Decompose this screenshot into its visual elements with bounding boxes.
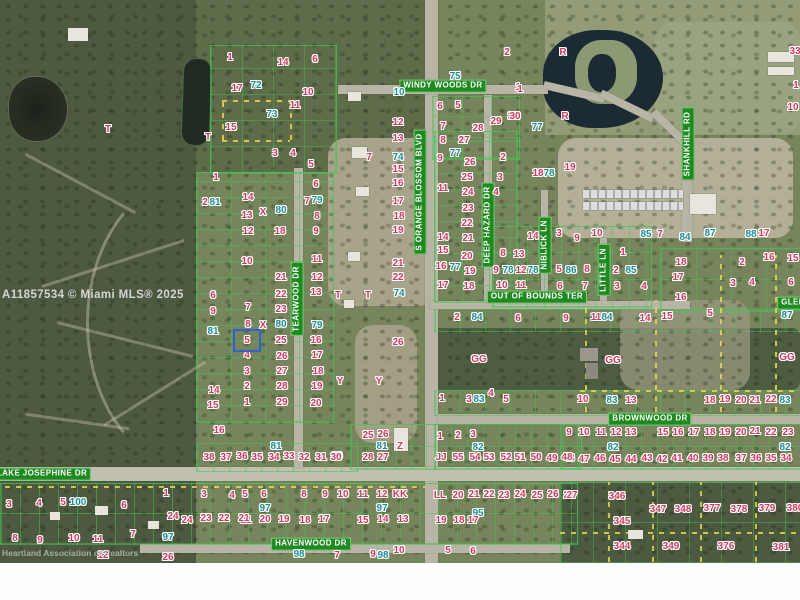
lot-number-label: 16 (672, 428, 683, 438)
lot-number-label: 22 (218, 514, 229, 524)
lot-number-label: 27 (566, 491, 577, 501)
lot-number-label: 3 (730, 279, 736, 289)
lot-number-label: 27 (377, 453, 388, 463)
lot-number-label: 1 (227, 53, 233, 63)
lot-number-label: JJ (435, 453, 446, 463)
lot-number-label: Y (337, 377, 344, 387)
lot-number-label: 28 (472, 124, 483, 134)
lot-number-label: 14 (242, 193, 253, 203)
lot-number-label: 1 (439, 394, 445, 404)
lot-number-label: 18 (675, 258, 686, 268)
lot-number-label: 24 (462, 188, 473, 198)
lot-number-label: 5 (503, 395, 509, 405)
lot-number-label: 29 (276, 398, 287, 408)
lot-number-label: 25 (362, 431, 373, 441)
lot-number-label: 17 (758, 229, 769, 239)
lot-number-label: 25 (531, 491, 542, 501)
lot-number-label: R (559, 48, 566, 58)
lot-number-label: 13 (625, 428, 636, 438)
lot-number-label: 20 (735, 396, 746, 406)
lot-number-label: 2 (739, 258, 745, 268)
lot-number-label: 15 (787, 254, 798, 264)
lot-number-label: 1 (620, 248, 626, 258)
lot-number-label: 49 (546, 454, 557, 464)
lot-number-label: 11 (516, 281, 527, 291)
lot-number-label: 18 (453, 516, 464, 526)
lot-number-label: 24 (167, 512, 178, 522)
lot-number-label: 8 (12, 534, 18, 544)
lot-number-label: 15 (661, 312, 672, 322)
lot-number-label: 54 (469, 453, 480, 463)
block-number-label: 100 (70, 498, 87, 508)
lot-number-label: 13 (241, 211, 252, 221)
lot-number-label: 2 (500, 153, 506, 163)
lot-number-label: T (105, 125, 111, 135)
lot-number-label: 2 (202, 198, 208, 208)
lot-number-label: 17 (231, 84, 242, 94)
lot-number-label: 20 (735, 428, 746, 438)
lot-number-label: T (205, 133, 211, 143)
lot-number-label: 5 (455, 101, 461, 111)
block-number-label: 79 (311, 196, 322, 206)
lot-number-label: 3 (614, 282, 620, 292)
lot-number-label: 18 (393, 212, 404, 222)
lot-number-label: 16 (675, 293, 686, 303)
lot-number-label: 377 (704, 504, 721, 514)
lot-number-label: 20 (452, 491, 463, 501)
lot-number-label: 1 (213, 173, 219, 183)
lot-number-label: 8 (500, 249, 506, 259)
lot-number-label: 3 (244, 367, 250, 377)
lot-number-label: 22 (461, 219, 472, 229)
bottom-white-strip (0, 563, 800, 600)
lot-number-label: 15 (392, 165, 403, 175)
block-number-label: 83 (606, 396, 617, 406)
lot-number-label: 10 (68, 534, 79, 544)
lot-number-label: 345 (614, 517, 631, 527)
attribution-watermark: Heartland Association of Realtors (2, 548, 138, 558)
lot-number-label: 12 (392, 118, 403, 128)
block-number-label: 78 (502, 266, 513, 276)
lot-number-label: 11 (438, 184, 449, 194)
lot-number-label: 18 (463, 282, 474, 292)
lot-number-label: T (335, 291, 341, 301)
lot-number-label: 14 (277, 58, 288, 68)
lot-number-label: 18 (704, 396, 715, 406)
mls-map-screenshot: WINDY WOODS DRS ORANGE BLOSSOM BLVDTEARW… (0, 0, 800, 600)
lot-number-label: 6 (312, 55, 318, 65)
block-number-label: 98 (293, 550, 304, 560)
lot-number-label: 5 (445, 546, 451, 556)
lot-number-label: 19 (435, 516, 446, 526)
lot-number-label: 19 (392, 226, 403, 236)
lot-number-label: 10 (302, 88, 313, 98)
highlighted-lot-number: 5 (244, 336, 250, 346)
lot-number-label: 13 (310, 288, 321, 298)
block-number-label: 86 (565, 266, 576, 276)
lot-number-label: 17 (672, 273, 683, 283)
lot-number-label: 7 (245, 303, 251, 313)
lot-number-label: Z (397, 442, 403, 452)
lot-number-label: 31 (315, 453, 326, 463)
lot-number-label: 8 (301, 490, 307, 500)
lot-number-label: 11 (591, 313, 602, 323)
block-number-label: 87 (704, 229, 715, 239)
lot-number-label: 10 (496, 281, 507, 291)
block-number-label: 97 (259, 504, 270, 514)
lot-number-label: 15 (657, 428, 668, 438)
lot-number-label: 22 (765, 395, 776, 405)
lot-number-label: 12 (610, 428, 621, 438)
lot-number-label: 5 (556, 265, 562, 275)
lot-number-label: 11 (290, 101, 301, 111)
block-number-label: 84 (679, 233, 690, 243)
block-number-label: 83 (779, 396, 790, 406)
lot-number-label: 376 (718, 542, 735, 552)
block-number-label: 80 (275, 206, 286, 216)
lot-number-label: 47 (578, 455, 589, 465)
lot-number-label: 346 (609, 492, 626, 502)
lot-number-label: 28 (362, 453, 373, 463)
lot-number-label: 4 (244, 351, 250, 361)
block-number-label: 81 (376, 442, 387, 452)
lot-number-label: 5 (60, 498, 66, 508)
lot-number-label: 10 (787, 103, 798, 113)
lot-number-label: 6 (470, 547, 476, 557)
lot-number-label: 34 (780, 454, 791, 464)
lot-number-label: 7 (657, 230, 663, 240)
lot-number-label: 35 (251, 453, 262, 463)
lot-number-label: 3 (272, 149, 278, 159)
lot-number-label: 26 (392, 338, 403, 348)
lot-number-label: 16 (392, 179, 403, 189)
lot-number-label: 22 (483, 490, 494, 500)
lot-number-label: GG (779, 353, 795, 363)
block-number-label: 78 (543, 169, 554, 179)
lot-number-label: 8 (584, 265, 590, 275)
lot-number-label: 3 (497, 173, 503, 183)
block-number-label: 88 (745, 230, 756, 240)
lot-number-label: 378 (731, 505, 748, 515)
block-number-label: 85 (625, 266, 636, 276)
lot-number-label: 7 (366, 153, 372, 163)
lot-number-label: 39 (702, 454, 713, 464)
lot-number-label: 18 (299, 516, 310, 526)
lot-number-label: 11 (596, 428, 607, 438)
lot-number-label: 9 (574, 234, 580, 244)
lot-number-label: 21 (275, 273, 286, 283)
lot-number-label: 6 (261, 490, 267, 500)
lot-number-label: 30 (330, 453, 341, 463)
lot-number-label: 10 (337, 490, 348, 500)
lot-number-label: 45 (609, 455, 620, 465)
lot-number-label: 16 (213, 426, 224, 436)
block-number-label: 77 (449, 149, 460, 159)
lot-number-label: 46 (594, 454, 605, 464)
lot-number-label: 19 (464, 267, 475, 277)
lot-number-label: 22 (275, 290, 286, 300)
lot-number-label: 20 (259, 515, 270, 525)
lot-number-label: 13 (625, 396, 636, 406)
lot-number-label: 14 (377, 515, 388, 525)
lot-number-label: 17 (467, 516, 478, 526)
block-number-label: 81 (209, 198, 220, 208)
lot-number-label: 1 (163, 489, 169, 499)
lot-number-label: GG (605, 356, 621, 366)
lot-number-label: 36 (236, 452, 247, 462)
lot-number-label: 23 (462, 204, 473, 214)
lot-number-label: 379 (759, 504, 776, 514)
lot-number-label: 9 (437, 154, 443, 164)
lot-number-label: 24 (181, 516, 192, 526)
block-number-label: 97 (162, 533, 173, 543)
lot-number-label: 3 (201, 490, 207, 500)
lot-number-label: 6 (121, 501, 127, 511)
lot-number-label: 7 (304, 197, 310, 207)
lot-number-label: 7 (334, 551, 340, 561)
lot-number-label: 25 (275, 336, 286, 346)
lot-number-label: 21 (238, 514, 249, 524)
block-number-label: 98 (377, 551, 388, 561)
lot-number-label: 52 (500, 453, 511, 463)
lot-number-label: 347 (650, 505, 667, 515)
lot-number-label: 19 (719, 428, 730, 438)
lot-number-label: 55 (452, 453, 463, 463)
lot-number-label: R (561, 112, 568, 122)
lot-number-label: 18 (704, 428, 715, 438)
lot-number-label: 37 (735, 454, 746, 464)
lot-number-label: 13 (513, 250, 524, 260)
lot-number-label: 13 (397, 515, 408, 525)
lot-number-label: 344 (614, 542, 631, 552)
lot-number-label: 40 (687, 454, 698, 464)
lot-number-label: 26 (377, 430, 388, 440)
block-number-label: 77 (531, 123, 542, 133)
block-number-label: 74 (393, 289, 404, 299)
lot-number-label: 17 (311, 351, 322, 361)
lot-number-label: 5 (308, 160, 314, 170)
lot-number-label: 12 (515, 266, 526, 276)
lot-number-label: 18 (532, 169, 543, 179)
lot-number-label: 2 (504, 48, 510, 58)
lot-number-label: 5 (707, 309, 713, 319)
lot-number-label: 5 (242, 490, 248, 500)
lot-number-label: 2 (455, 431, 461, 441)
lot-number-label: 2 (613, 266, 619, 276)
lot-number-label: 21 (468, 490, 479, 500)
lot-number-label: 12 (242, 227, 253, 237)
lot-number-label: 20 (461, 252, 472, 262)
lot-number-label: LL (434, 491, 446, 501)
block-number-label: 73 (266, 110, 277, 120)
lot-number-label: 4 (488, 389, 494, 399)
lot-number-label: 19 (311, 382, 322, 392)
lot-number-label: 38 (717, 454, 728, 464)
lot-number-label: 4 (36, 499, 42, 509)
lot-number-label: 4 (641, 282, 647, 292)
lot-number-label: 1 (244, 398, 250, 408)
block-number-label: 77 (449, 263, 460, 273)
block-number-label: 79 (311, 321, 322, 331)
lot-number-label: 23 (200, 514, 211, 524)
lot-number-label: 9 (370, 550, 376, 560)
lot-number-label: 18 (312, 367, 323, 377)
lot-number-label: 6 (557, 282, 563, 292)
block-number-label: 85 (640, 230, 651, 240)
lot-number-label: 12 (376, 490, 387, 500)
block-number-label: 97 (376, 504, 387, 514)
lot-number-label: 12 (311, 273, 322, 283)
lot-number-label: 43 (641, 454, 652, 464)
block-number-label: 74 (392, 153, 403, 163)
lot-number-label: KK (393, 490, 407, 500)
block-number-label: 81 (207, 327, 218, 337)
lot-number-label: 9 (37, 536, 43, 546)
lot-number-label: 381 (773, 543, 790, 553)
lot-number-label: 380 (787, 504, 800, 514)
lot-number-label: 348 (675, 505, 692, 515)
lot-number-label: 21 (749, 427, 760, 437)
lot-number-label: 9 (493, 266, 499, 276)
lot-number-label: 19 (719, 395, 730, 405)
block-number-label: 84 (471, 313, 482, 323)
lot-number-label: 4 (229, 491, 235, 501)
lot-number-label: 26 (464, 158, 475, 168)
lot-number-label: 6 (437, 102, 443, 112)
lot-number-label: 23 (498, 491, 509, 501)
lot-number-label: 17 (688, 428, 699, 438)
lot-number-label: X (260, 208, 267, 218)
block-number-label: 82 (779, 443, 790, 453)
lot-number-label: 4 (493, 188, 499, 198)
lot-number-label: 22 (392, 273, 403, 283)
lot-number-label: 23 (782, 428, 793, 438)
block-number-label: 78 (527, 266, 538, 276)
lot-number-label: 51 (514, 453, 525, 463)
lot-number-label: 9 (210, 307, 216, 317)
lot-number-label: 27 (458, 136, 469, 146)
lot-number-label: 9 (566, 428, 572, 438)
lot-number-label: 1 (437, 432, 443, 442)
block-number-label: 83 (473, 395, 484, 405)
lot-number-label: 15 (437, 246, 448, 256)
lot-number-label: 3 (466, 395, 472, 405)
highlighted-subject-lot[interactable]: 5 (233, 329, 261, 352)
lot-number-label: 16 (435, 262, 446, 272)
lot-number-label: 7 (582, 282, 588, 292)
parcel-map[interactable]: WINDY WOODS DRS ORANGE BLOSSOM BLVDTEARW… (0, 0, 800, 563)
lot-number-label: 26 (547, 490, 558, 500)
lot-number-label: 27 (276, 367, 287, 377)
lot-number-label: 15 (357, 516, 368, 526)
lot-number-label: 7 (130, 530, 136, 540)
block-number-label: 80 (275, 320, 286, 330)
lot-number-label: 349 (663, 542, 680, 552)
lot-number-label: 30 (509, 112, 520, 122)
lot-number-label: 11 (358, 490, 369, 500)
lot-number-label: 33 (789, 47, 800, 57)
lot-number-label: 16 (763, 253, 774, 263)
lot-number-label: 42 (656, 455, 667, 465)
block-number-label: 82 (607, 443, 618, 453)
lot-number-label: 14 (437, 233, 448, 243)
lot-number-label: 6 (210, 291, 216, 301)
lot-number-label: 50 (530, 453, 541, 463)
lot-number-label: 35 (765, 454, 776, 464)
lot-number-label: 14 (208, 386, 219, 396)
lot-number-label: 14 (639, 314, 650, 324)
lot-number-label: 6 (788, 278, 794, 288)
lot-number-label: 36 (750, 454, 761, 464)
lot-number-label: 44 (625, 455, 636, 465)
lot-number-label: 14 (527, 232, 538, 242)
block-number-label: 81 (270, 442, 281, 452)
lot-number-label: 41 (671, 454, 682, 464)
lot-number-label: 26 (162, 553, 173, 563)
block-number-label: 10 (393, 88, 404, 98)
lot-number-label: 16 (310, 336, 321, 346)
lot-number-label: 38 (203, 453, 214, 463)
lot-number-label: 8 (440, 136, 446, 146)
lot-number-label: 10 (578, 428, 589, 438)
lot-number-label: 17 (437, 281, 448, 291)
lot-number-label: 10 (577, 395, 588, 405)
mls-watermark: A11857534 © Miami MLS® 2025 (2, 289, 184, 301)
lot-number-label: 33 (283, 452, 294, 462)
lot-number-label: 9 (322, 490, 328, 500)
lot-number-label: 21 (392, 259, 403, 269)
lot-number-label: 4 (290, 149, 296, 159)
lot-number-label: 1 (517, 85, 523, 95)
lot-number-label: 9 (313, 227, 319, 237)
block-number-label: 87 (781, 311, 792, 321)
lot-number-label: 29 (490, 117, 501, 127)
lot-number-label: 10 (591, 229, 602, 239)
lot-number-label: 17 (318, 515, 329, 525)
lot-number-label: 15 (207, 401, 218, 411)
lot-number-label: 11 (312, 255, 323, 265)
lot-number-label: 22 (765, 428, 776, 438)
lot-number-label: 9 (563, 314, 569, 324)
lot-number-label: GG (471, 355, 487, 365)
lot-number-label: 3 (470, 430, 476, 440)
block-number-label: 84 (601, 313, 612, 323)
lot-number-label: T (365, 291, 371, 301)
lot-number-label: 4 (749, 278, 755, 288)
lot-number-label: 34 (268, 453, 279, 463)
lot-number-label: 10 (393, 546, 404, 556)
lot-labels-layer: T1146177210117315T34512811413X8012181067… (0, 0, 800, 563)
block-number-label: 72 (250, 81, 261, 91)
lot-number-label: 48 (561, 453, 572, 463)
lot-number-label: 11 (93, 535, 104, 545)
lot-number-label: 10 (241, 257, 252, 267)
lot-number-label: 6 (515, 314, 521, 324)
lot-number-label: 21 (462, 234, 473, 244)
lot-number-label: 3 (556, 229, 562, 239)
lot-number-label: 26 (276, 352, 287, 362)
lot-number-label: 13 (392, 134, 403, 144)
lot-number-label: 32 (298, 453, 309, 463)
lot-number-label: 23 (275, 305, 286, 315)
lot-number-label: 19 (564, 163, 575, 173)
lot-number-label: 1 (793, 81, 799, 91)
lot-number-label: 24 (514, 490, 525, 500)
lot-number-label: 25 (461, 173, 472, 183)
lot-number-label: 7 (440, 122, 446, 132)
lot-number-label: 19 (278, 515, 289, 525)
lot-number-label: 17 (392, 197, 403, 207)
